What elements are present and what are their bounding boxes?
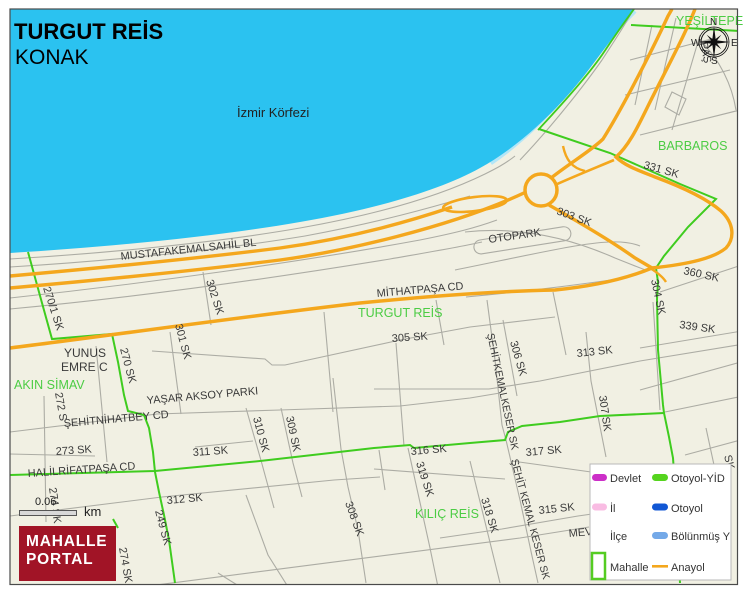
svg-text:km: km (84, 504, 101, 519)
svg-text:Anayol: Anayol (671, 562, 705, 574)
svg-text:TURGUT REİS: TURGUT REİS (358, 306, 443, 320)
svg-text:Devlet: Devlet (610, 473, 641, 485)
svg-text:0.06: 0.06 (35, 496, 56, 508)
svg-text:YUNUS: YUNUS (64, 346, 106, 360)
svg-text:KONAK: KONAK (15, 46, 89, 69)
svg-text:Mahalle: Mahalle (610, 562, 649, 574)
svg-text:AKIN SİMAV: AKIN SİMAV (14, 378, 85, 392)
svg-text:Otoyol-YİD: Otoyol-YİD (671, 472, 725, 485)
svg-text:İzmir Körfezi: İzmir Körfezi (237, 105, 309, 120)
svg-text:PORTAL: PORTAL (26, 551, 93, 568)
svg-text:TURGUT REİS: TURGUT REİS (14, 19, 163, 44)
svg-text:W: W (691, 38, 701, 49)
svg-text:311 SK: 311 SK (192, 445, 229, 459)
svg-text:İl: İl (610, 502, 616, 515)
svg-text:EMRE C: EMRE C (61, 360, 108, 374)
svg-text:BARBAROS: BARBAROS (658, 139, 727, 153)
svg-text:KILIÇ REİS: KILIÇ REİS (415, 507, 479, 521)
svg-text:S: S (711, 56, 718, 67)
svg-text:Otoyol: Otoyol (671, 503, 703, 515)
svg-text:273 SK: 273 SK (55, 443, 92, 458)
svg-text:MAHALLE: MAHALLE (26, 533, 107, 550)
svg-text:Bölünmüş Y: Bölünmüş Y (671, 531, 731, 543)
svg-text:305 SK: 305 SK (391, 330, 428, 345)
svg-text:İlçe: İlçe (610, 530, 627, 543)
svg-text:N: N (710, 17, 717, 28)
